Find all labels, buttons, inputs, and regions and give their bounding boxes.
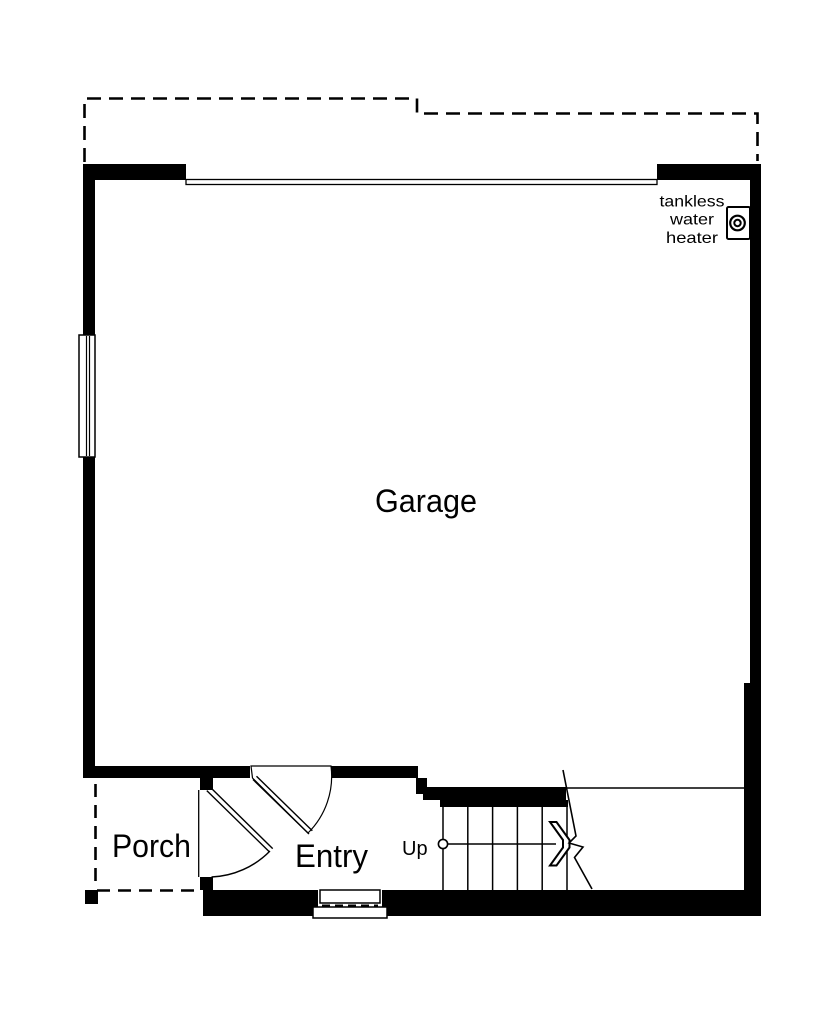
garage-door-opening — [186, 180, 657, 185]
water-heater-icon — [727, 207, 750, 239]
garage-entry-door-swing — [251, 766, 332, 833]
entry-window-sill — [313, 907, 387, 918]
stairs-up-label: Up — [402, 838, 428, 860]
wall-garage-bottom-left — [83, 766, 250, 778]
front-door-jamb-bottom — [200, 877, 213, 890]
wall-bottom-right — [382, 890, 744, 916]
wall-top-left — [83, 164, 186, 180]
porch-label: Porch — [112, 828, 191, 864]
wall-top-right — [657, 164, 761, 180]
entry-window — [313, 890, 387, 918]
left-window — [79, 335, 95, 457]
wall-left-lower — [83, 456, 95, 767]
stair-direction-start-circle — [438, 839, 447, 848]
dashed-outline-path — [85, 99, 758, 163]
stair-header-bar — [423, 787, 566, 800]
stair-treads — [443, 807, 567, 890]
garage-label: Garage — [375, 483, 477, 519]
wall-right-upper — [750, 180, 761, 683]
entry-label: Entry — [295, 838, 368, 874]
wall-right-lower — [744, 683, 761, 916]
front-door — [199, 787, 273, 877]
wall-bottom-left — [203, 890, 318, 916]
garage-entry-door — [251, 766, 332, 834]
water-heater-label: tankless water heater — [660, 194, 725, 248]
walls — [83, 164, 761, 916]
water-heater-label-line2: water — [669, 212, 715, 229]
water-heater-vent-inner — [734, 220, 740, 226]
wall-left-upper — [83, 180, 95, 336]
floor-plan-canvas: Garage Porch Entry Up tankless water hea… — [0, 0, 840, 1018]
stair-top-riser-bar — [440, 800, 568, 807]
floor-plan-drawing: Garage Porch Entry Up tankless water hea… — [0, 0, 840, 1018]
water-heater-label-line1: tankless — [660, 194, 725, 211]
porch-corner-stub — [85, 890, 98, 904]
wall-garage-bottom-right — [331, 766, 418, 778]
upper-floor-dashed-outline — [85, 99, 758, 163]
water-heater-label-line3: heater — [666, 230, 719, 247]
front-door-swing-fill — [208, 790, 270, 877]
entry-window-frame — [320, 890, 380, 903]
